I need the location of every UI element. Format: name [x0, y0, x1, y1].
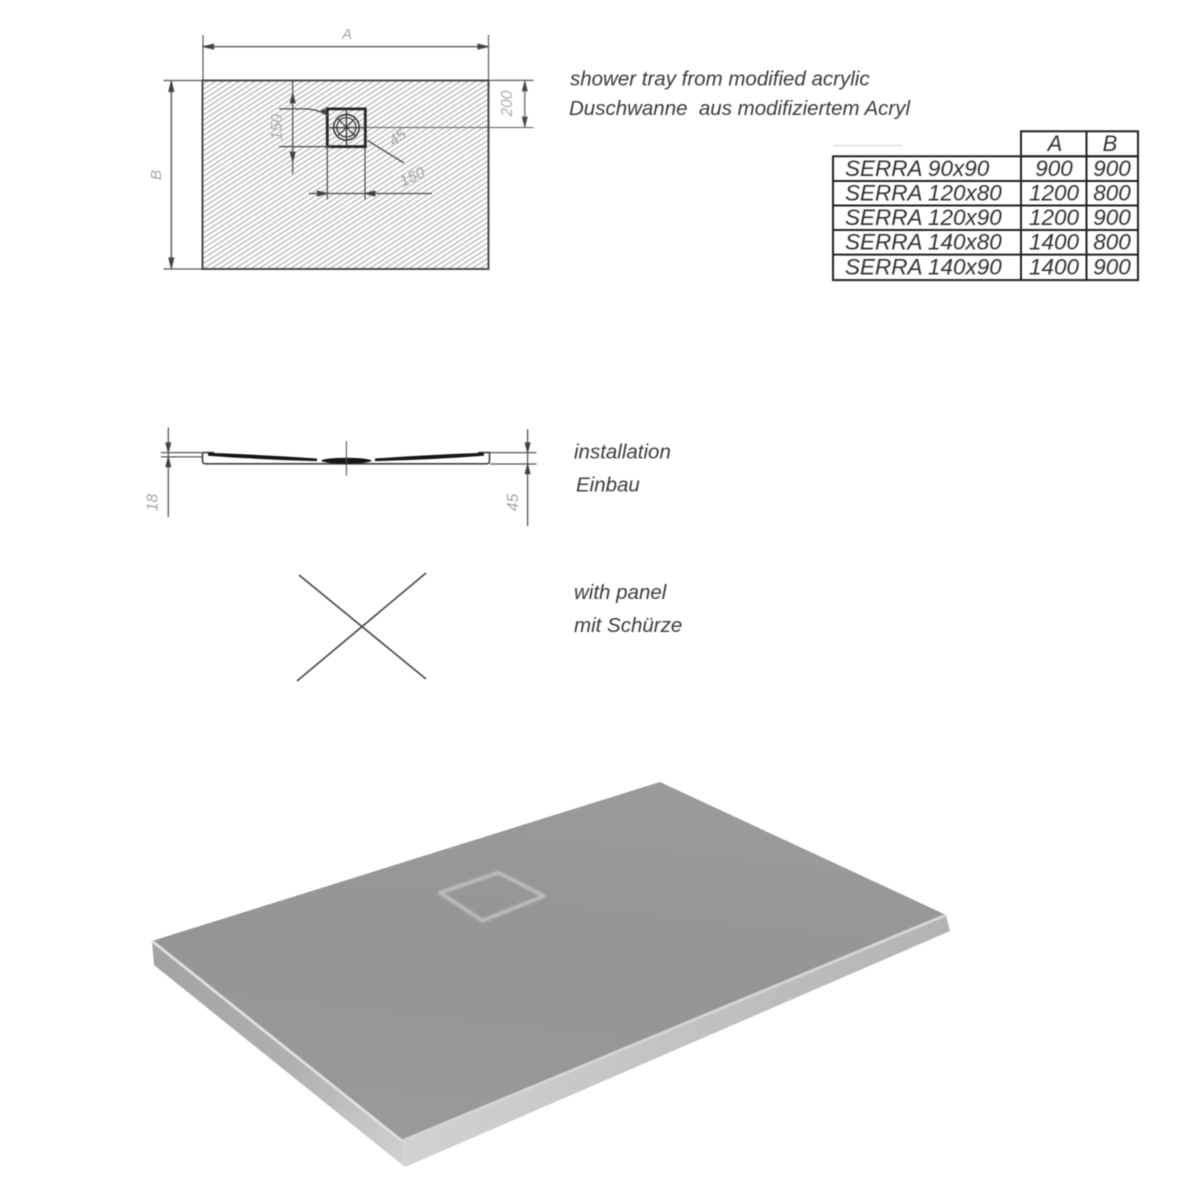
svg-text:B: B — [148, 170, 165, 180]
svg-text:45: 45 — [505, 494, 522, 512]
svg-text:18: 18 — [145, 494, 162, 512]
svg-text:900: 900 — [1093, 156, 1131, 181]
svg-text:Duschwanne aus modifiziertem: Duschwanne aus modifiziertem Acryl — [569, 97, 911, 120]
svg-text:A: A — [341, 26, 352, 43]
svg-text:1400: 1400 — [1029, 230, 1080, 255]
svg-text:SERRA 120x90: SERRA 120x90 — [845, 205, 1002, 230]
svg-text:Einbau: Einbau — [576, 474, 640, 497]
svg-text:A: A — [1046, 131, 1063, 156]
svg-text:200: 200 — [499, 90, 516, 117]
svg-text:1400: 1400 — [1029, 255, 1080, 280]
svg-text:with panel: with panel — [574, 581, 668, 604]
svg-text:shower tray from modified acry: shower tray from modified acrylic — [570, 68, 870, 91]
svg-text:mit Schürze: mit Schürze — [574, 614, 682, 637]
svg-text:installation: installation — [574, 441, 671, 464]
svg-text:SERRA 90x90: SERRA 90x90 — [845, 156, 990, 181]
svg-text:900: 900 — [1035, 156, 1073, 181]
svg-text:1200: 1200 — [1029, 205, 1080, 230]
svg-text:800: 800 — [1093, 181, 1131, 206]
svg-text:900: 900 — [1093, 205, 1131, 230]
svg-text:150: 150 — [269, 114, 286, 140]
svg-text:800: 800 — [1093, 230, 1131, 255]
svg-text:SERRA 140x80: SERRA 140x80 — [845, 230, 1002, 255]
svg-text:B: B — [1103, 131, 1118, 156]
svg-text:1200: 1200 — [1029, 181, 1080, 206]
svg-text:SERRA 140x90: SERRA 140x90 — [845, 255, 1002, 280]
svg-text:SERRA 120x80: SERRA 120x80 — [845, 181, 1002, 206]
svg-text:900: 900 — [1093, 255, 1131, 280]
